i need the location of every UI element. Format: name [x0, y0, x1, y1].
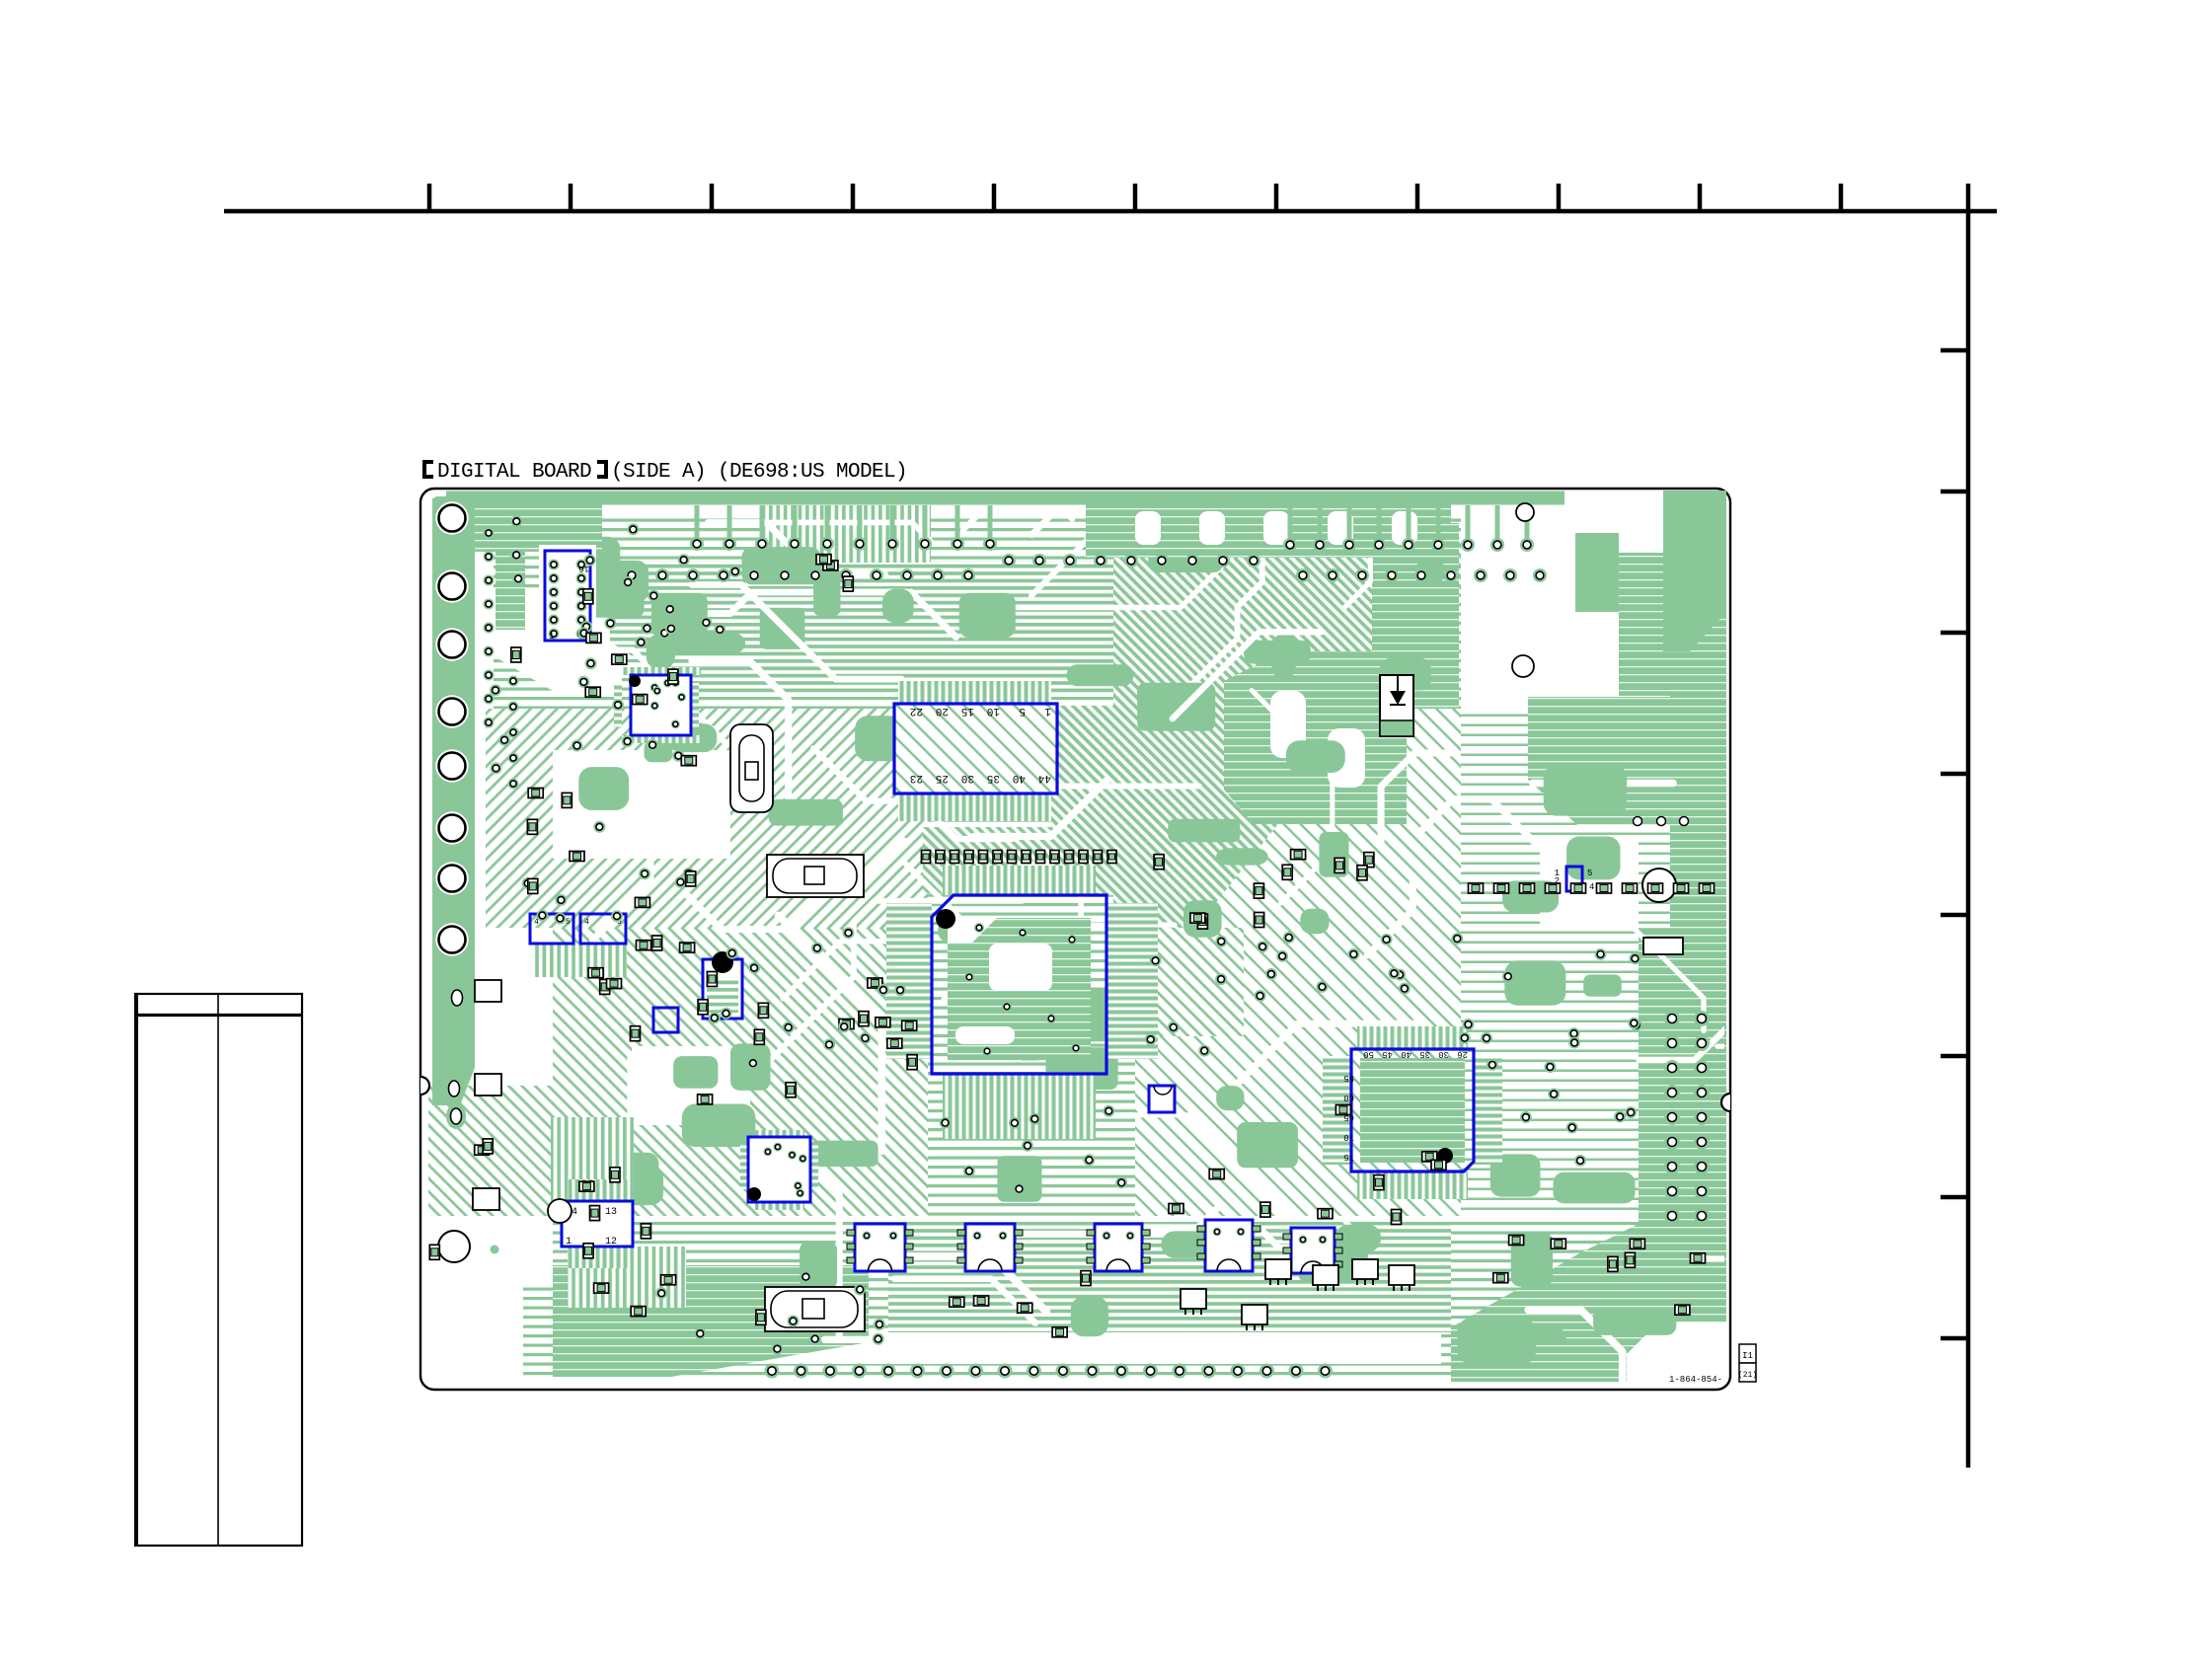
svg-text:60: 60	[1343, 1093, 1354, 1102]
svg-text:40: 40	[1401, 1049, 1411, 1059]
svg-text:25: 25	[936, 772, 949, 784]
svg-text:DIGITAL BOARD: DIGITAL BOARD	[437, 461, 591, 484]
svg-text:I1: I1	[1742, 1351, 1753, 1361]
svg-text:4: 4	[1589, 882, 1594, 892]
svg-text:50: 50	[1363, 1049, 1374, 1059]
svg-text:5: 5	[1019, 705, 1026, 717]
svg-text:1: 1	[1044, 705, 1051, 717]
svg-text:13: 13	[605, 1207, 617, 1218]
svg-text:75: 75	[1343, 1152, 1354, 1162]
svg-text:40: 40	[1013, 772, 1026, 784]
svg-text:1: 1	[566, 1237, 572, 1247]
svg-text:20: 20	[936, 705, 949, 717]
svg-text:30: 30	[1438, 1049, 1449, 1059]
svg-text:30: 30	[961, 772, 974, 784]
svg-text:26: 26	[1457, 1049, 1468, 1059]
svg-text:5: 5	[566, 918, 571, 927]
svg-text:(SIDE A) (DE698:US MODEL): (SIDE A) (DE698:US MODEL)	[611, 461, 907, 484]
svg-text:35: 35	[987, 772, 1000, 784]
svg-text:1: 1	[549, 632, 554, 642]
svg-text:23: 23	[910, 772, 923, 784]
svg-text:35: 35	[1419, 1049, 1430, 1059]
svg-text:70: 70	[1343, 1132, 1354, 1142]
svg-text:10: 10	[987, 705, 1000, 717]
svg-text:12: 12	[605, 1237, 617, 1247]
svg-text:55: 55	[1343, 1073, 1354, 1083]
svg-text:45: 45	[1382, 1049, 1393, 1059]
svg-text:15: 15	[961, 705, 974, 717]
svg-text:1-864-854-: 1-864-854-	[1669, 1375, 1722, 1385]
svg-text:44: 44	[1037, 772, 1051, 784]
svg-text:5: 5	[1587, 869, 1592, 878]
svg-text:22: 22	[910, 705, 923, 717]
svg-text:4: 4	[584, 918, 589, 927]
svg-text:(21): (21)	[1738, 1371, 1757, 1380]
